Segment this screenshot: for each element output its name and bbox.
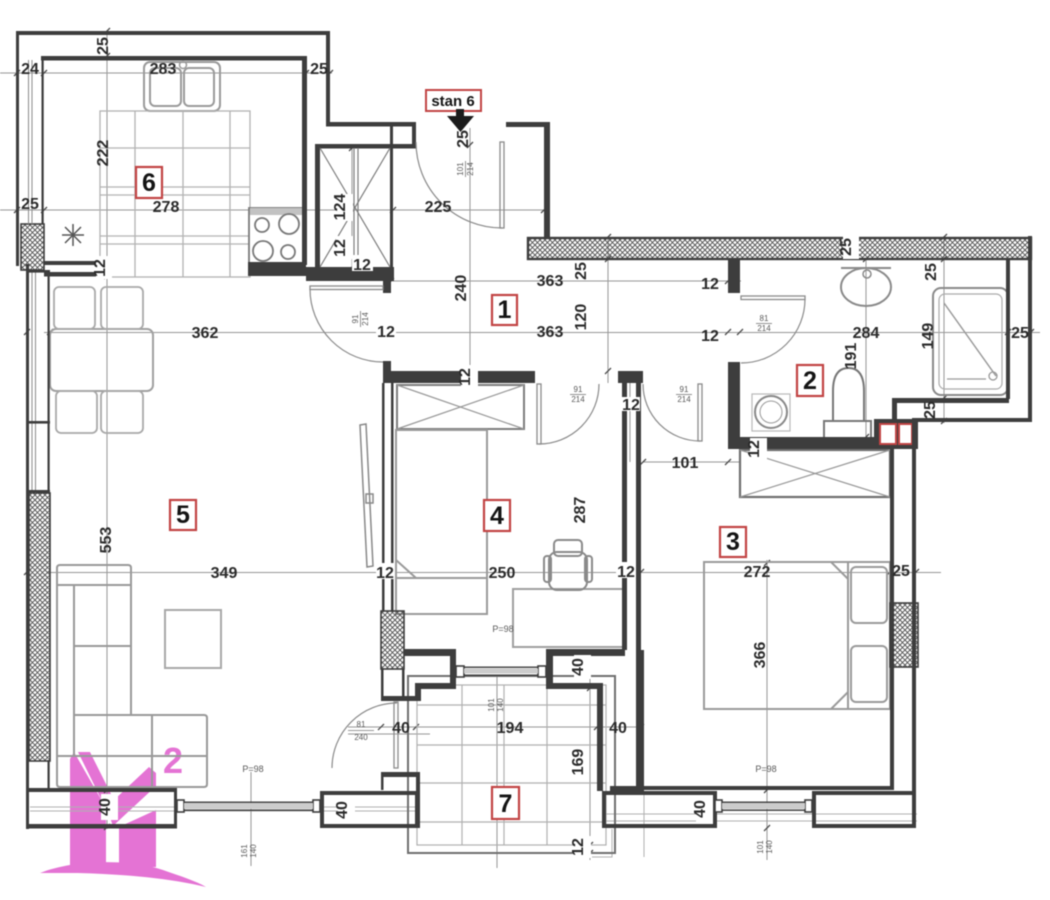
svg-text:P=98: P=98 — [755, 764, 776, 774]
svg-text:101: 101 — [756, 840, 765, 854]
svg-text:40: 40 — [570, 658, 587, 676]
svg-text:2: 2 — [803, 367, 817, 395]
svg-text:169: 169 — [570, 749, 587, 776]
svg-text:214: 214 — [361, 312, 370, 326]
svg-text:363: 363 — [537, 273, 564, 290]
svg-text:25: 25 — [923, 263, 940, 281]
svg-text:191: 191 — [843, 343, 860, 370]
svg-text:366: 366 — [752, 642, 769, 669]
svg-text:24: 24 — [21, 61, 39, 78]
svg-text:161: 161 — [240, 844, 249, 858]
svg-text:12: 12 — [617, 564, 635, 581]
svg-text:12: 12 — [376, 565, 394, 582]
svg-text:214: 214 — [677, 395, 691, 404]
svg-text:25: 25 — [1011, 325, 1029, 342]
svg-text:240: 240 — [354, 733, 368, 742]
svg-text:7: 7 — [499, 790, 513, 818]
svg-text:362: 362 — [192, 325, 219, 342]
svg-text:240: 240 — [453, 275, 470, 302]
svg-text:283: 283 — [150, 61, 177, 78]
svg-text:12: 12 — [701, 328, 719, 345]
svg-text:25: 25 — [455, 130, 472, 148]
svg-text:stan 6: stan 6 — [431, 93, 474, 110]
svg-text:P=98: P=98 — [492, 624, 513, 634]
svg-text:214: 214 — [757, 324, 771, 333]
svg-text:5: 5 — [176, 501, 190, 529]
svg-text:25: 25 — [892, 563, 910, 580]
svg-text:349: 349 — [211, 565, 238, 582]
svg-text:25: 25 — [310, 61, 328, 78]
svg-text:25: 25 — [573, 262, 590, 280]
svg-text:12: 12 — [353, 257, 371, 274]
svg-text:1: 1 — [498, 296, 512, 324]
svg-text:140: 140 — [249, 844, 258, 858]
svg-text:101: 101 — [487, 698, 496, 712]
svg-text:124: 124 — [332, 194, 349, 221]
svg-text:149: 149 — [920, 323, 937, 350]
svg-text:12: 12 — [332, 239, 349, 257]
svg-text:25: 25 — [21, 196, 39, 213]
svg-text:214: 214 — [466, 162, 475, 176]
svg-text:12: 12 — [457, 368, 474, 386]
svg-text:40: 40 — [334, 801, 351, 819]
svg-text:81: 81 — [357, 720, 366, 729]
svg-text:214: 214 — [571, 395, 585, 404]
svg-text:101: 101 — [672, 455, 699, 472]
svg-text:12: 12 — [377, 324, 395, 341]
svg-text:278: 278 — [153, 199, 180, 216]
svg-text:553: 553 — [98, 527, 115, 554]
svg-text:250: 250 — [489, 565, 516, 582]
svg-text:272: 272 — [744, 564, 771, 581]
svg-text:225: 225 — [425, 199, 452, 216]
svg-text:91: 91 — [351, 314, 360, 323]
svg-text:40: 40 — [97, 798, 114, 816]
svg-text:12: 12 — [746, 440, 763, 458]
svg-text:363: 363 — [537, 324, 564, 341]
svg-text:222: 222 — [95, 140, 112, 167]
svg-text:3: 3 — [726, 528, 740, 556]
svg-text:81: 81 — [760, 314, 769, 323]
svg-text:91: 91 — [574, 385, 583, 394]
svg-text:6: 6 — [142, 169, 156, 197]
svg-text:25: 25 — [838, 238, 855, 256]
svg-text:40: 40 — [609, 720, 627, 737]
svg-text:12: 12 — [570, 838, 587, 856]
svg-text:194: 194 — [497, 720, 524, 737]
svg-text:91: 91 — [680, 385, 689, 394]
svg-text:140: 140 — [765, 840, 774, 854]
svg-text:12: 12 — [701, 276, 719, 293]
svg-text:101: 101 — [456, 162, 465, 176]
svg-text:25: 25 — [922, 401, 939, 419]
svg-text:40: 40 — [692, 800, 709, 818]
svg-text:12: 12 — [92, 259, 109, 277]
svg-text:2: 2 — [163, 740, 183, 781]
svg-text:P=98: P=98 — [242, 764, 263, 774]
svg-text:140: 140 — [496, 698, 505, 712]
svg-text:25: 25 — [95, 37, 112, 55]
svg-text:4: 4 — [490, 502, 504, 530]
svg-text:287: 287 — [572, 497, 589, 524]
svg-text:120: 120 — [573, 304, 590, 331]
svg-text:12: 12 — [622, 397, 640, 414]
svg-text:40: 40 — [392, 720, 410, 737]
svg-text:284: 284 — [853, 325, 880, 342]
